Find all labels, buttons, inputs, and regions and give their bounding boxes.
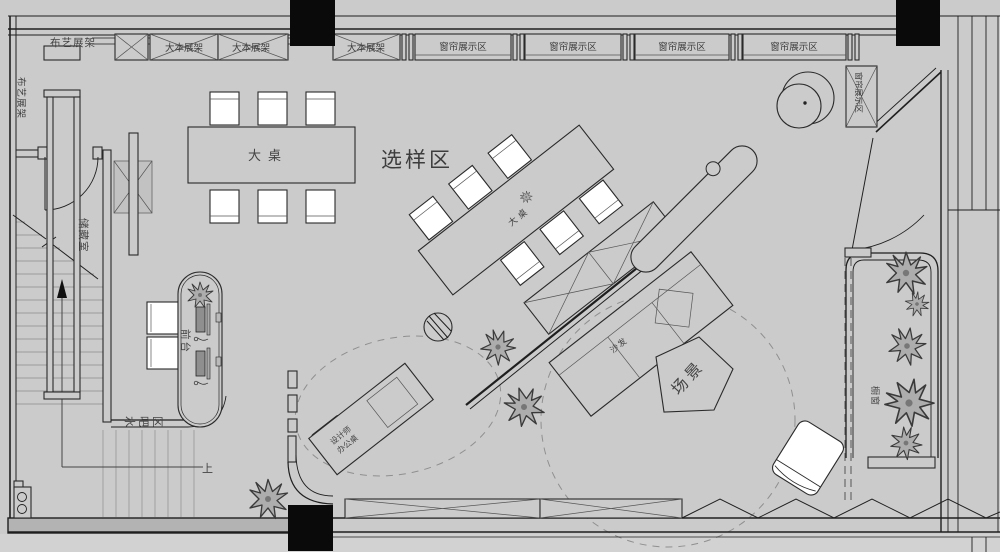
column [288, 505, 333, 551]
bar-chair [147, 337, 178, 369]
book-rack-label-1: 大本展架 [165, 42, 204, 54]
curtain-display-label-2: 窗帘展示区 [549, 41, 597, 53]
stairs-up-label: 上 [202, 462, 213, 475]
column [290, 0, 335, 46]
book-rack-label-3: 大本展架 [347, 42, 386, 54]
bar-chair [147, 302, 178, 334]
partition-wall [103, 150, 111, 422]
wall-fixture [14, 481, 31, 518]
display-window-label: 橱窗 [870, 386, 881, 406]
curtain-display-label-1: 窗帘展示区 [439, 41, 487, 53]
column [896, 0, 940, 46]
floor-plan-canvas: 大桌 沙发 场景 设 [0, 0, 1000, 552]
fabric-rack-left-label: 布艺展架 [15, 77, 27, 119]
book-rack-label-2: 大本展架 [232, 42, 271, 54]
big-table-label: 大桌 [248, 148, 288, 163]
fabric-rack-top-label: 布艺展架 [50, 37, 96, 49]
hatched-circle [424, 313, 452, 341]
storage-label: 储藏室 [77, 218, 90, 253]
reception-label: 前台 [179, 329, 192, 354]
curtain-display-label-4: 窗帘展示区 [770, 41, 818, 53]
curtain-display-side-label: 窗帘展示区 [854, 72, 864, 113]
curtain-display-label-3: 窗帘展示区 [658, 41, 706, 53]
floor-plan-drawing: 大桌 沙发 场景 设 [0, 0, 1000, 552]
sample-area-label: 选样区 [381, 149, 453, 172]
water-bar-label: 水吧区 [123, 416, 163, 430]
